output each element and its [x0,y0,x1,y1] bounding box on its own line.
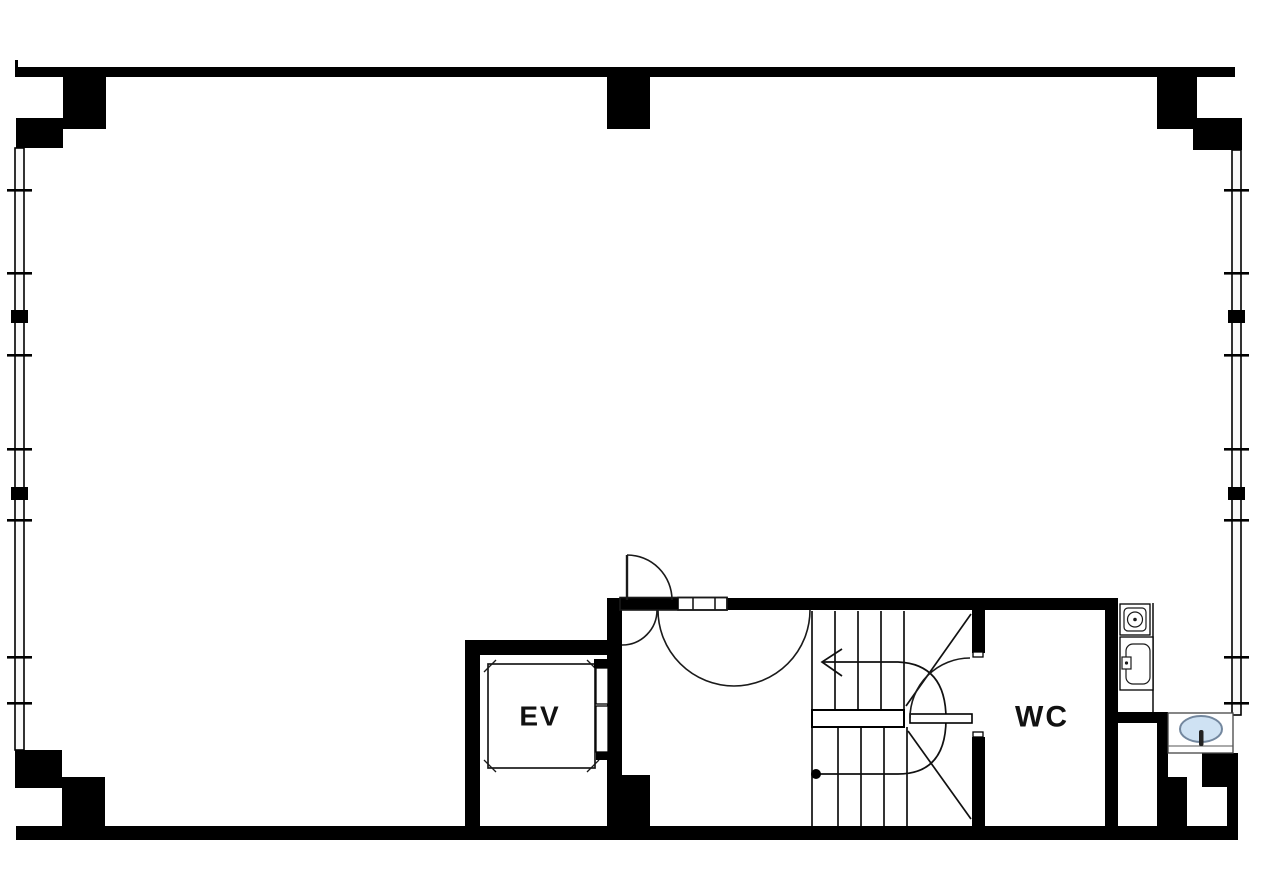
window-mullion [1224,354,1249,357]
elevator: EV [484,659,608,772]
door-sill [620,598,678,611]
corner-step-bottom-left [62,777,105,830]
corner-block-top-right [1193,118,1242,150]
stair-wc-wall-lower [972,737,985,828]
window-mullion [1224,272,1249,275]
entry-doorway [620,555,810,686]
window-mullion [7,702,32,705]
hall-top-wall-right [727,598,1118,610]
window-mullion [1224,189,1249,192]
window-mullion [1224,656,1249,659]
pillar-top-right [1157,77,1197,129]
stair-winder-line [908,731,971,819]
wc-door-leaf [910,714,972,723]
corner-strip-c [1227,787,1238,828]
window-mullion [7,656,32,659]
window-glazing [1232,150,1241,715]
stair-start-dot [811,769,821,779]
corner-step-b [1168,777,1187,828]
ev-door-nub-top [594,659,608,668]
window-divider-block [1228,310,1245,323]
wc-room: WC [910,652,1069,737]
corner-block-bottom-left [15,750,62,788]
right-window [1224,150,1249,715]
ev-label: EV [519,701,560,732]
wc-door-stub-top [973,652,983,657]
wall-tick [15,60,18,68]
window-mullion [7,448,32,451]
window-divider-block [1228,487,1245,500]
corner-block-a [1202,753,1238,787]
window-mullion [1224,519,1249,522]
sink-faucet-dot [1125,661,1128,664]
window-mullion [1224,448,1249,451]
pillar-top-center [607,77,650,129]
bottom-wall [16,826,1238,840]
stair-wc-wall-upper [972,603,985,653]
corner-block-top-left [16,118,63,148]
floor-plan: EV WC [0,0,1280,892]
ev-top-wall [465,640,622,655]
door-swing-arc-large [658,610,810,686]
window-mullion [7,519,32,522]
door-swing-arc [627,555,672,600]
stair-rail [812,710,904,727]
window-mullion [7,354,32,357]
wc-label: WC [1015,701,1069,734]
window-mullion [7,189,32,192]
kitchenette [1120,603,1153,712]
pillar-top-left [63,77,106,129]
hall-left-wall [607,608,622,775]
wc-right-wall [1105,608,1118,828]
window-divider-block [11,487,28,500]
basin-tap [1199,730,1204,746]
hall-left-base-block [607,775,650,828]
wash-basin-counter [1168,713,1233,753]
ev-left-wall [465,652,480,828]
pipe-space-right-wall [1157,712,1168,828]
water-heater-dot [1133,618,1137,622]
window-mullion [1224,702,1249,705]
ev-door-panel [596,668,608,704]
window-mullion [7,272,32,275]
top-wall [15,67,1235,77]
door-swing-arc-small [622,610,657,645]
window-divider-block [11,310,28,323]
ev-door-panel [596,706,608,752]
floor-plan-svg: EV WC [0,0,1280,892]
ev-door-nub-bottom [596,752,608,760]
door-frame [678,598,727,611]
wc-door-stub-bottom [973,732,983,737]
left-window [7,148,32,750]
